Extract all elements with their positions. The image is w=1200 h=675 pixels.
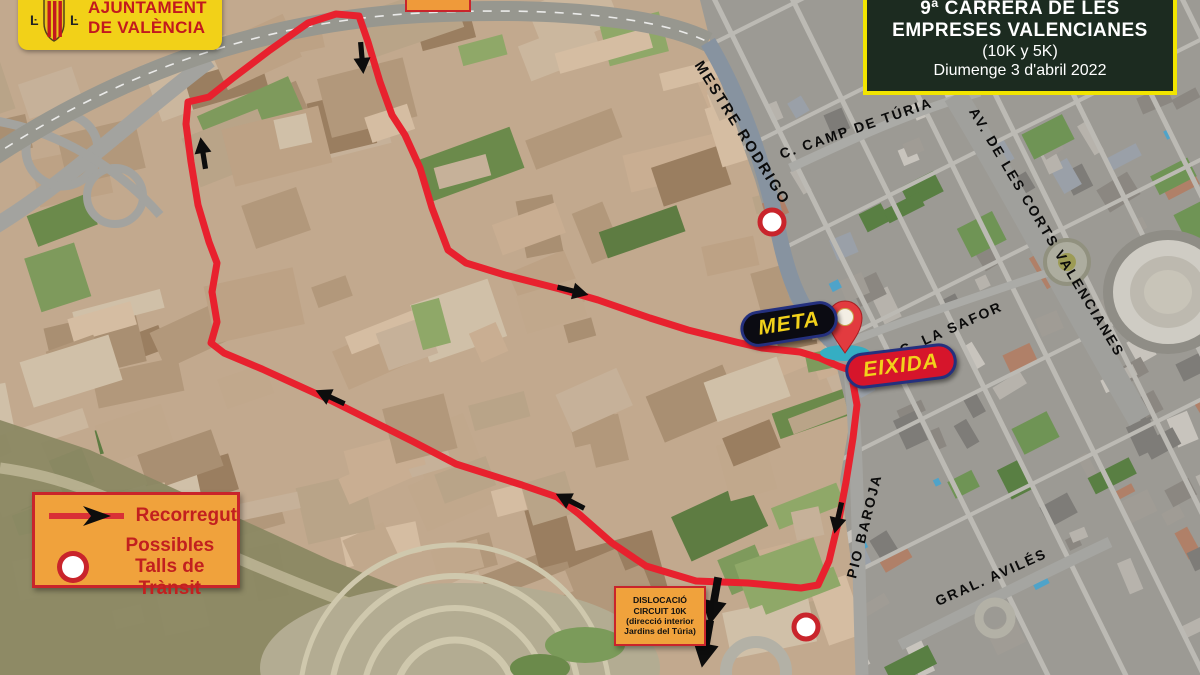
partial-top-box xyxy=(405,0,471,12)
race-title-line2: EMPRESES VALENCIANES xyxy=(892,20,1148,42)
svg-text:Ŀ: Ŀ xyxy=(70,12,79,28)
field-patch xyxy=(791,506,825,540)
traffic-cut-icon xyxy=(57,551,89,583)
race-title-line1: 9ª CARRERA DE LES xyxy=(920,0,1120,20)
logo-line1: AJUNTAMENT xyxy=(88,0,207,18)
race-date: Diumenge 3 d'abril 2022 xyxy=(934,62,1107,80)
route-arrow-icon xyxy=(49,505,124,527)
svg-text:Ŀ: Ŀ xyxy=(30,12,39,28)
traffic-cut-marker-south xyxy=(794,615,818,639)
legend-talls-line2: Talls de Trànsit xyxy=(103,556,237,599)
legend-box: Recorregut Possibles Talls de Trànsit xyxy=(32,492,240,588)
logo-line2: DE VALÈNCIA xyxy=(88,18,207,38)
note-line2: CIRCUIT 10K xyxy=(633,606,686,616)
legend-recorregut-label: Recorregut xyxy=(136,505,237,526)
race-title-box: 9ª CARRERA DE LES EMPRESES VALENCIANES (… xyxy=(863,0,1177,95)
ajuntament-logo: Ŀ Ŀ AJUNTAMENT DE VALÈNCIA xyxy=(18,0,222,50)
stadium xyxy=(1108,235,1200,349)
legend-talls-line1: Possibles xyxy=(103,535,237,556)
note-line1: DISLOCACIÓ xyxy=(633,595,687,605)
race-distance: (10K y 5K) xyxy=(982,43,1058,61)
valencia-coat-of-arms-icon: Ŀ Ŀ xyxy=(28,0,80,49)
race-map-page: MESTRE RODRIGO C. CAMP DE TÚRIA AV. DE L… xyxy=(0,0,1200,675)
traffic-cut-marker-north xyxy=(760,210,784,234)
note-line3: (direcció interior xyxy=(626,616,694,626)
note-line4: Jardins del Túria) xyxy=(624,626,696,636)
dislocation-note-box: DISLOCACIÓ CIRCUIT 10K (direcció interio… xyxy=(614,586,706,646)
